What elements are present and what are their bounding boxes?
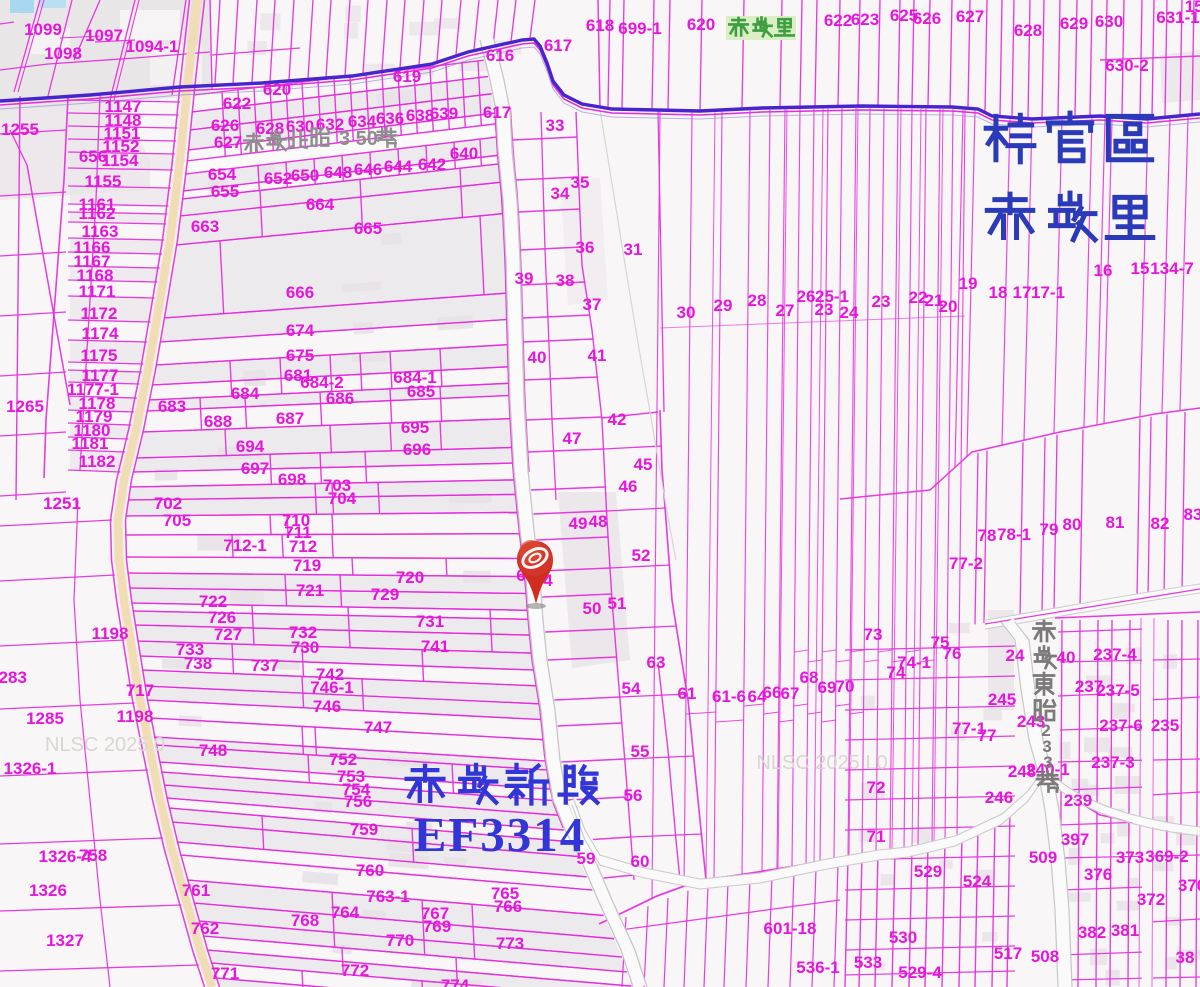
svg-text:71: 71: [867, 827, 886, 846]
svg-text:1097: 1097: [85, 26, 123, 45]
svg-text:769: 769: [423, 917, 451, 936]
svg-text:617: 617: [483, 103, 511, 122]
svg-text:719: 719: [293, 556, 321, 575]
svg-text:642: 642: [418, 155, 446, 174]
svg-text:731: 731: [416, 612, 444, 631]
svg-text:683: 683: [158, 397, 186, 416]
svg-text:720: 720: [396, 568, 424, 587]
svg-text:50: 50: [583, 599, 602, 618]
svg-text:30: 30: [677, 303, 696, 322]
svg-text:696: 696: [403, 440, 431, 459]
svg-text:619: 619: [393, 67, 421, 86]
svg-text:70: 70: [836, 677, 855, 696]
svg-text:630: 630: [1095, 12, 1123, 31]
svg-text:80: 80: [1063, 515, 1082, 534]
svg-text:1174: 1174: [82, 324, 119, 343]
svg-text:1326-1: 1326-1: [4, 759, 57, 778]
svg-text:31: 31: [624, 240, 643, 259]
svg-text:646: 646: [354, 160, 382, 179]
svg-text:663: 663: [191, 217, 219, 236]
svg-text:762: 762: [191, 919, 219, 938]
svg-text:747: 747: [364, 718, 392, 737]
svg-text:1283: 1283: [0, 668, 27, 687]
svg-text:620: 620: [687, 15, 715, 34]
svg-text:601-18: 601-18: [764, 919, 817, 938]
svg-text:666: 666: [286, 283, 314, 302]
svg-text:768: 768: [291, 911, 319, 930]
svg-text:766: 766: [494, 897, 522, 916]
svg-text:652: 652: [264, 169, 292, 188]
svg-text:60: 60: [631, 852, 650, 871]
svg-text:644: 644: [384, 157, 413, 176]
svg-text:48: 48: [589, 512, 608, 531]
svg-text:655: 655: [211, 182, 239, 201]
svg-text:1326: 1326: [29, 881, 67, 900]
svg-text:18: 18: [989, 283, 1008, 302]
svg-text:686: 686: [326, 389, 354, 408]
svg-text:237-3: 237-3: [1091, 753, 1134, 772]
svg-text:49: 49: [569, 514, 588, 533]
svg-text:1255: 1255: [1, 120, 39, 139]
svg-text:738: 738: [184, 654, 212, 673]
svg-text:372: 372: [1137, 890, 1165, 909]
svg-text:17-1: 17-1: [1031, 283, 1065, 302]
svg-text:66: 66: [763, 683, 782, 702]
svg-text:648: 648: [324, 163, 352, 182]
svg-text:237-4: 237-4: [1093, 645, 1137, 664]
svg-text:695: 695: [401, 418, 429, 437]
svg-text:685: 685: [407, 382, 435, 401]
svg-text:636: 636: [376, 109, 404, 128]
svg-text:508: 508: [1031, 947, 1059, 966]
svg-text:530: 530: [889, 928, 917, 947]
svg-text:1162: 1162: [79, 204, 116, 223]
svg-text:712: 712: [289, 537, 317, 556]
svg-text:373: 373: [1116, 848, 1144, 867]
svg-text:628: 628: [1014, 21, 1042, 40]
svg-text:771: 771: [211, 964, 239, 983]
svg-text:245: 245: [988, 690, 1016, 709]
svg-text:622: 622: [223, 94, 251, 113]
svg-text:NLSC 2025.0: NLSC 2025.0: [45, 734, 165, 756]
svg-text:36: 36: [576, 238, 595, 257]
svg-text:687: 687: [276, 409, 304, 428]
svg-text:688: 688: [204, 412, 232, 431]
svg-text:618: 618: [586, 16, 614, 35]
svg-text:639: 639: [430, 104, 458, 123]
svg-text:78: 78: [978, 526, 997, 545]
svg-text:76: 76: [943, 644, 962, 663]
svg-text:712-1: 712-1: [223, 536, 266, 555]
svg-text:78-1: 78-1: [997, 525, 1031, 544]
svg-text:727: 727: [214, 625, 242, 644]
svg-text:626: 626: [913, 9, 941, 28]
svg-text:1171: 1171: [79, 282, 116, 301]
svg-text:717: 717: [126, 681, 154, 700]
svg-text:772: 772: [341, 961, 369, 980]
svg-text:33: 33: [546, 116, 565, 135]
svg-text:760: 760: [356, 861, 384, 880]
svg-text:28: 28: [748, 291, 767, 310]
svg-text:698: 698: [278, 470, 306, 489]
svg-text:1251: 1251: [43, 494, 81, 513]
svg-text:52: 52: [632, 546, 651, 565]
svg-text:1175: 1175: [81, 346, 118, 365]
svg-text:617: 617: [544, 36, 572, 55]
svg-text:656: 656: [79, 147, 107, 166]
svg-text:529: 529: [914, 862, 942, 881]
svg-text:770: 770: [386, 931, 414, 950]
svg-text:63: 63: [647, 653, 666, 672]
svg-text:42: 42: [608, 410, 627, 429]
svg-text:529-4: 529-4: [898, 963, 942, 982]
svg-text:1285: 1285: [26, 709, 64, 728]
svg-text:746-1: 746-1: [310, 678, 353, 697]
svg-text:616: 616: [486, 46, 514, 65]
svg-text:23: 23: [872, 292, 891, 311]
svg-text:37: 37: [583, 295, 602, 314]
svg-text:46: 46: [619, 477, 638, 496]
svg-text:237-6: 237-6: [1099, 716, 1142, 735]
svg-text:35: 35: [571, 173, 590, 192]
svg-text:3: 3: [1043, 753, 1052, 772]
svg-text:82: 82: [1151, 514, 1170, 533]
svg-text:627: 627: [956, 7, 984, 26]
svg-text:56: 56: [624, 786, 643, 805]
svg-text:248: 248: [1008, 762, 1036, 781]
svg-text:369-2: 369-2: [1145, 847, 1188, 866]
svg-text:533: 533: [854, 953, 882, 972]
svg-text:45: 45: [634, 455, 653, 474]
svg-text:134-7: 134-7: [1150, 259, 1193, 278]
svg-text:74-1: 74-1: [897, 653, 931, 672]
svg-text:748: 748: [199, 741, 227, 760]
svg-text:397: 397: [1061, 830, 1089, 849]
svg-text:40: 40: [528, 348, 547, 367]
svg-text:68: 68: [800, 668, 819, 687]
svg-text:61-6: 61-6: [712, 687, 746, 706]
svg-text:764: 764: [331, 903, 360, 922]
svg-text:19: 19: [959, 274, 978, 293]
svg-text:39: 39: [515, 269, 534, 288]
svg-text:26: 26: [797, 287, 816, 306]
svg-text:24: 24: [840, 303, 859, 322]
svg-text:NLSC 2025 L0: NLSC 2025 L0: [756, 752, 887, 774]
svg-text:705: 705: [163, 511, 191, 530]
svg-text:1198: 1198: [92, 624, 129, 643]
svg-text:54: 54: [622, 679, 641, 698]
svg-text:69: 69: [818, 678, 837, 697]
svg-text:650: 650: [291, 166, 319, 185]
svg-text:1155: 1155: [85, 172, 122, 191]
svg-text:38: 38: [1176, 948, 1195, 967]
svg-text:55: 55: [631, 742, 650, 761]
svg-text:EF3314: EF3314: [414, 807, 587, 862]
svg-text:79: 79: [1040, 520, 1059, 539]
svg-text:622: 622: [824, 11, 852, 30]
svg-text:699-1: 699-1: [618, 19, 661, 38]
svg-text:721: 721: [296, 581, 324, 600]
svg-text:20: 20: [939, 297, 958, 316]
svg-text:623: 623: [851, 10, 879, 29]
svg-text:15-: 15-: [1185, 0, 1200, 16]
svg-text:1181: 1181: [72, 434, 109, 453]
svg-text:730: 730: [291, 638, 319, 657]
svg-text:29: 29: [714, 296, 733, 315]
svg-text:761: 761: [182, 881, 210, 900]
svg-text:756: 756: [344, 792, 372, 811]
svg-text:1198: 1198: [117, 707, 154, 726]
svg-text:376: 376: [1084, 865, 1112, 884]
svg-text:370: 370: [1178, 876, 1200, 895]
svg-text:773: 773: [496, 934, 524, 953]
svg-text:1094-1: 1094-1: [126, 37, 179, 56]
svg-text:1327: 1327: [46, 931, 84, 950]
svg-text:697: 697: [241, 459, 269, 478]
svg-text:246: 246: [985, 788, 1013, 807]
svg-text:746: 746: [313, 697, 341, 716]
svg-text:763-1: 763-1: [366, 887, 409, 906]
svg-text:627: 627: [214, 133, 242, 152]
svg-text:675: 675: [286, 346, 314, 365]
svg-text:15: 15: [1131, 259, 1150, 278]
svg-text:1099: 1099: [24, 20, 62, 39]
svg-text:517: 517: [994, 944, 1022, 963]
svg-text:237: 237: [1075, 677, 1103, 696]
svg-text:1098: 1098: [44, 44, 82, 63]
svg-text:684: 684: [231, 384, 260, 403]
svg-text:61: 61: [678, 684, 697, 703]
svg-text:737: 737: [251, 656, 279, 675]
svg-text:729: 729: [371, 585, 399, 604]
svg-text:77: 77: [978, 726, 997, 745]
svg-text:73: 73: [864, 625, 883, 644]
svg-text:41: 41: [588, 346, 607, 365]
svg-text:630-2: 630-2: [1105, 56, 1148, 75]
svg-text:1182: 1182: [79, 452, 116, 471]
svg-text:235: 235: [1151, 716, 1179, 735]
svg-text:51: 51: [608, 594, 627, 613]
svg-text:382: 382: [1078, 923, 1106, 942]
svg-text:640: 640: [450, 144, 478, 163]
svg-text:17: 17: [1013, 283, 1032, 302]
svg-text:704: 704: [328, 489, 357, 508]
svg-text:27: 27: [776, 301, 795, 320]
svg-text:34: 34: [551, 184, 570, 203]
svg-text:759: 759: [350, 820, 378, 839]
svg-text:509: 509: [1029, 848, 1057, 867]
svg-text:83: 83: [1184, 505, 1200, 524]
svg-text:72: 72: [867, 778, 886, 797]
svg-text:665: 665: [354, 219, 382, 238]
svg-text:24: 24: [1006, 646, 1025, 665]
svg-text:524: 524: [963, 872, 992, 891]
svg-text:23: 23: [815, 300, 834, 319]
svg-text:67: 67: [781, 684, 800, 703]
svg-text:47: 47: [563, 429, 582, 448]
svg-text:40: 40: [1057, 648, 1076, 667]
svg-text:81: 81: [1106, 513, 1125, 532]
svg-text:16: 16: [1094, 261, 1113, 280]
svg-text:536-1: 536-1: [796, 958, 839, 977]
svg-text:239: 239: [1064, 791, 1092, 810]
svg-text:1172: 1172: [81, 304, 118, 323]
svg-text:694: 694: [236, 437, 265, 456]
svg-text:774: 774: [441, 976, 470, 987]
svg-text:758: 758: [79, 846, 107, 865]
svg-text:620: 620: [263, 80, 291, 99]
svg-text:674: 674: [286, 321, 315, 340]
svg-text:38: 38: [556, 271, 575, 290]
svg-text:664: 664: [306, 195, 335, 214]
svg-text:741: 741: [421, 637, 449, 656]
svg-text:381: 381: [1111, 921, 1139, 940]
svg-text:3 50: 3 50: [339, 128, 378, 150]
svg-text:77-2: 77-2: [949, 554, 983, 573]
svg-text:1265: 1265: [6, 397, 44, 416]
svg-text:629: 629: [1060, 14, 1088, 33]
